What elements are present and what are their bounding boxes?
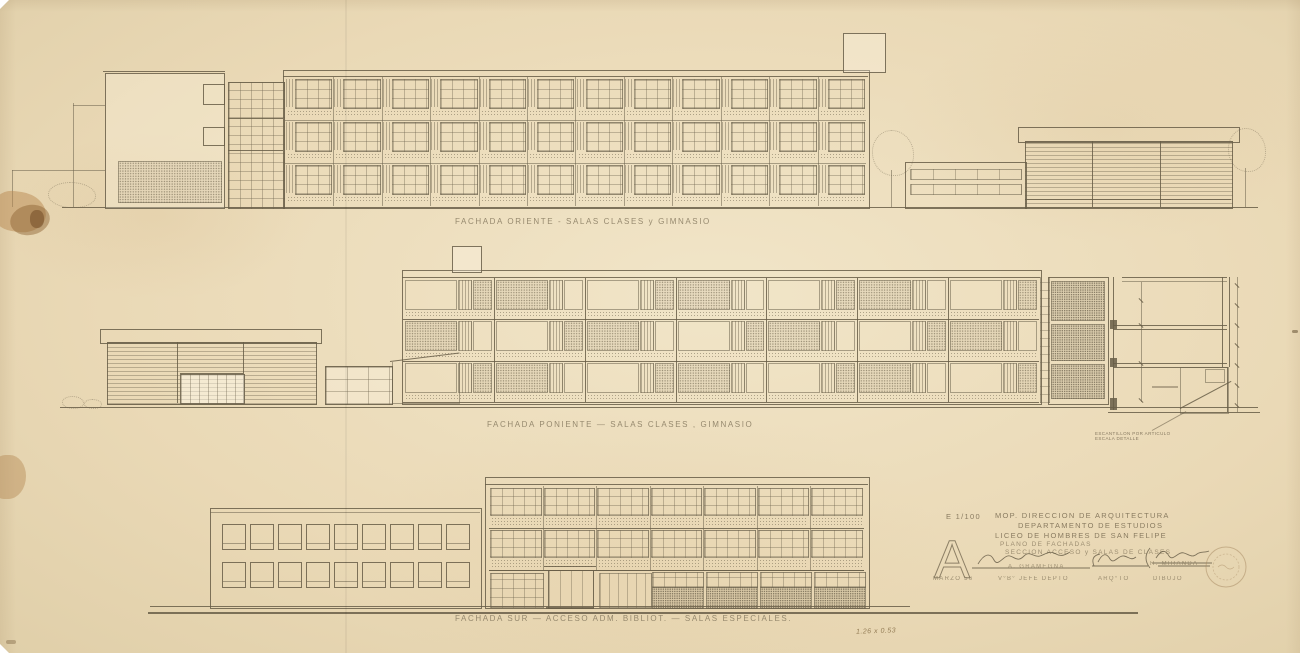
poniente-connector xyxy=(325,366,393,405)
bush xyxy=(62,396,84,409)
building-section xyxy=(1100,270,1270,420)
caption-oriente: FACHADA ORIENTE - SALAS CLASES y GIMNASI… xyxy=(455,217,711,226)
sur-ground-glazing xyxy=(599,573,652,608)
oriente-left-window xyxy=(203,84,225,105)
bush xyxy=(48,182,96,208)
oriente-left-stipple-band xyxy=(118,161,222,203)
paper-speck xyxy=(1292,330,1298,333)
scan-corner xyxy=(0,644,9,653)
tape-stain xyxy=(30,210,44,228)
elevation-sur: FACHADA SUR — ACCESO ADM. BIBLIOT. — SAL… xyxy=(0,455,1300,653)
chimney xyxy=(452,246,482,273)
sur-right-stories xyxy=(489,486,864,570)
tree xyxy=(1228,128,1266,172)
architectural-drawing-sheet: FACHADA ORIENTE - SALAS CLASES y GIMNASI… xyxy=(0,0,1300,653)
chimney xyxy=(843,33,886,73)
entrance-door xyxy=(548,570,594,609)
fold-crease xyxy=(345,0,347,653)
sur-ground-glazing xyxy=(490,573,544,608)
section-note: ESCANTILLON POR ARTICULO ESCALA DETALLE xyxy=(1095,431,1171,441)
caption-poniente: FACHADA PONIENTE — SALAS CLASES , GIMNAS… xyxy=(487,420,753,429)
oriente-main-stories xyxy=(285,77,866,206)
elevation-oriente: FACHADA ORIENTE - SALAS CLASES y GIMNASI… xyxy=(0,0,1300,240)
oriente-left-window xyxy=(203,127,225,146)
oriente-curtain-wall xyxy=(228,82,285,209)
bush xyxy=(84,399,102,409)
scan-corner xyxy=(0,0,9,9)
poniente-main-stories xyxy=(403,278,1039,402)
elevation-poniente: ESCANTILLON POR ARTICULO ESCALA DETALLE … xyxy=(0,240,1300,455)
caption-sur: FACHADA SUR — ACCESO ADM. BIBLIOT. — SAL… xyxy=(455,614,792,623)
poniente-gym-doors xyxy=(180,374,245,404)
